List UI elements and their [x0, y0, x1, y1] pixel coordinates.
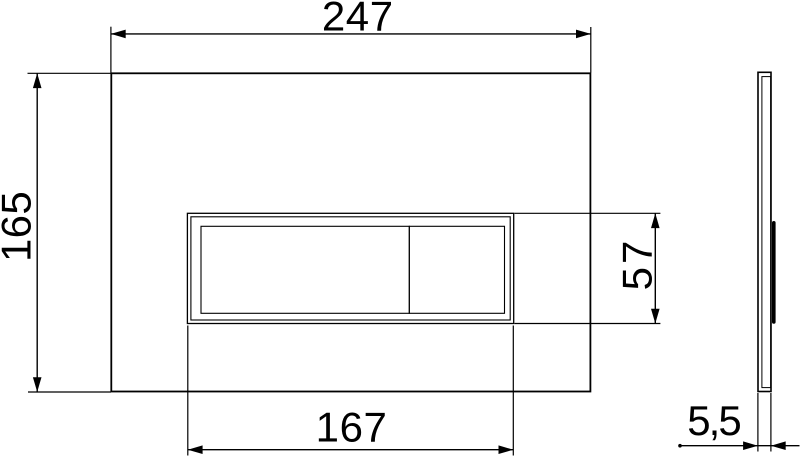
- svg-text:165: 165: [0, 191, 40, 262]
- svg-text:247: 247: [322, 0, 394, 39]
- svg-text:57: 57: [614, 238, 661, 291]
- svg-text:167: 167: [316, 403, 388, 450]
- svg-text:5,5: 5,5: [687, 397, 740, 444]
